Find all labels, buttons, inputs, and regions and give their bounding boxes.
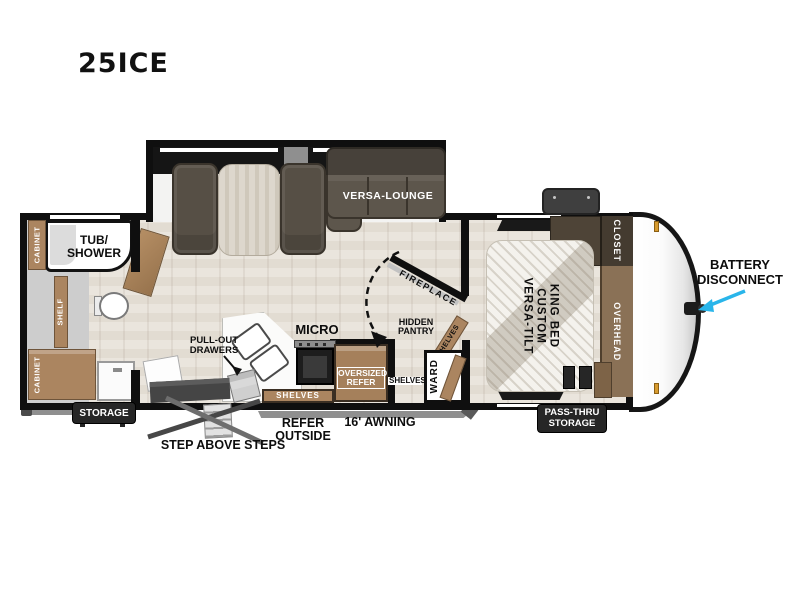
marker-light-bottom [654, 383, 659, 394]
tub-shower-label: TUB/SHOWER [58, 234, 130, 259]
vanity-faucet [113, 368, 122, 372]
bed-foot-cabinet [594, 362, 612, 398]
hidden-pantry-label: HIDDENPANTRY [392, 318, 440, 337]
range-glass [303, 356, 327, 378]
steps-label: STEP ABOVE STEPS [158, 439, 288, 452]
battery-disconnect-arrow-icon [708, 291, 745, 306]
wall-refer-right [388, 339, 395, 403]
bathroom-window [50, 215, 120, 219]
floorplan-canvas: 25ICE TUB/SHOWER CABINET SHELF CABINET [0, 0, 800, 600]
wall-bedroom-upper [461, 217, 469, 296]
shelves-small-label: SHELVES [388, 377, 422, 385]
marker-light-top [654, 221, 659, 232]
micro-label: MICRO [294, 323, 340, 337]
wall-bath-upper [131, 217, 140, 272]
tv-mount-screw-left [553, 196, 556, 199]
sofa-back [326, 147, 446, 177]
oversized-refer-label: OVERSIZEDREFER [337, 367, 385, 389]
slide-out-window-left [160, 148, 278, 152]
wardrobe-label: WARD [424, 352, 446, 401]
bathroom-vanity [97, 361, 135, 401]
versa-lounge-label: VERSA-LOUNGE [332, 191, 444, 202]
battery-disconnect-knob-tip [698, 304, 707, 313]
bathroom-cabinet-lower-label: CABINET [27, 350, 47, 400]
range-knobs [299, 343, 331, 346]
storage-badge-foot-left [80, 424, 85, 427]
model-title: 25ICE [78, 48, 169, 79]
bed-foot-step-left [563, 366, 575, 389]
kitchen-shelves-label: SHELVES [262, 392, 334, 400]
tv-mount-screw-right [587, 196, 590, 199]
microwave-range [296, 348, 334, 385]
awning-label: 16' AWNING [342, 416, 418, 429]
toilet-bowl [99, 292, 129, 320]
pass-thru-storage-badge: PASS-THRUSTORAGE [537, 404, 607, 433]
storage-badge-foot-right [120, 424, 125, 427]
entry-step-platform [150, 378, 231, 403]
range-hood-strip [294, 340, 336, 348]
bathroom-shelf-label: SHELF [52, 276, 70, 348]
dinette-table [218, 164, 280, 256]
wall-bath-lower [131, 370, 140, 404]
tv-mount [542, 188, 600, 215]
storage-badge: STORAGE [72, 402, 136, 424]
bathroom-cabinet-upper-label: CABINET [27, 220, 47, 270]
closet-label: CLOSET [600, 216, 633, 266]
pull-out-drawers-label: PULL-OUTDRAWERS [178, 336, 250, 356]
king-bed-label: KING BED CUSTOM VERSA-TILT [486, 240, 594, 392]
bed-foot-step-right [579, 366, 592, 389]
dinette-bench-left [172, 163, 218, 255]
dinette-bench-right [280, 163, 326, 255]
exterior-steps [203, 403, 233, 438]
battery-disconnect-label: BATTERYDISCONNECT [686, 257, 794, 288]
